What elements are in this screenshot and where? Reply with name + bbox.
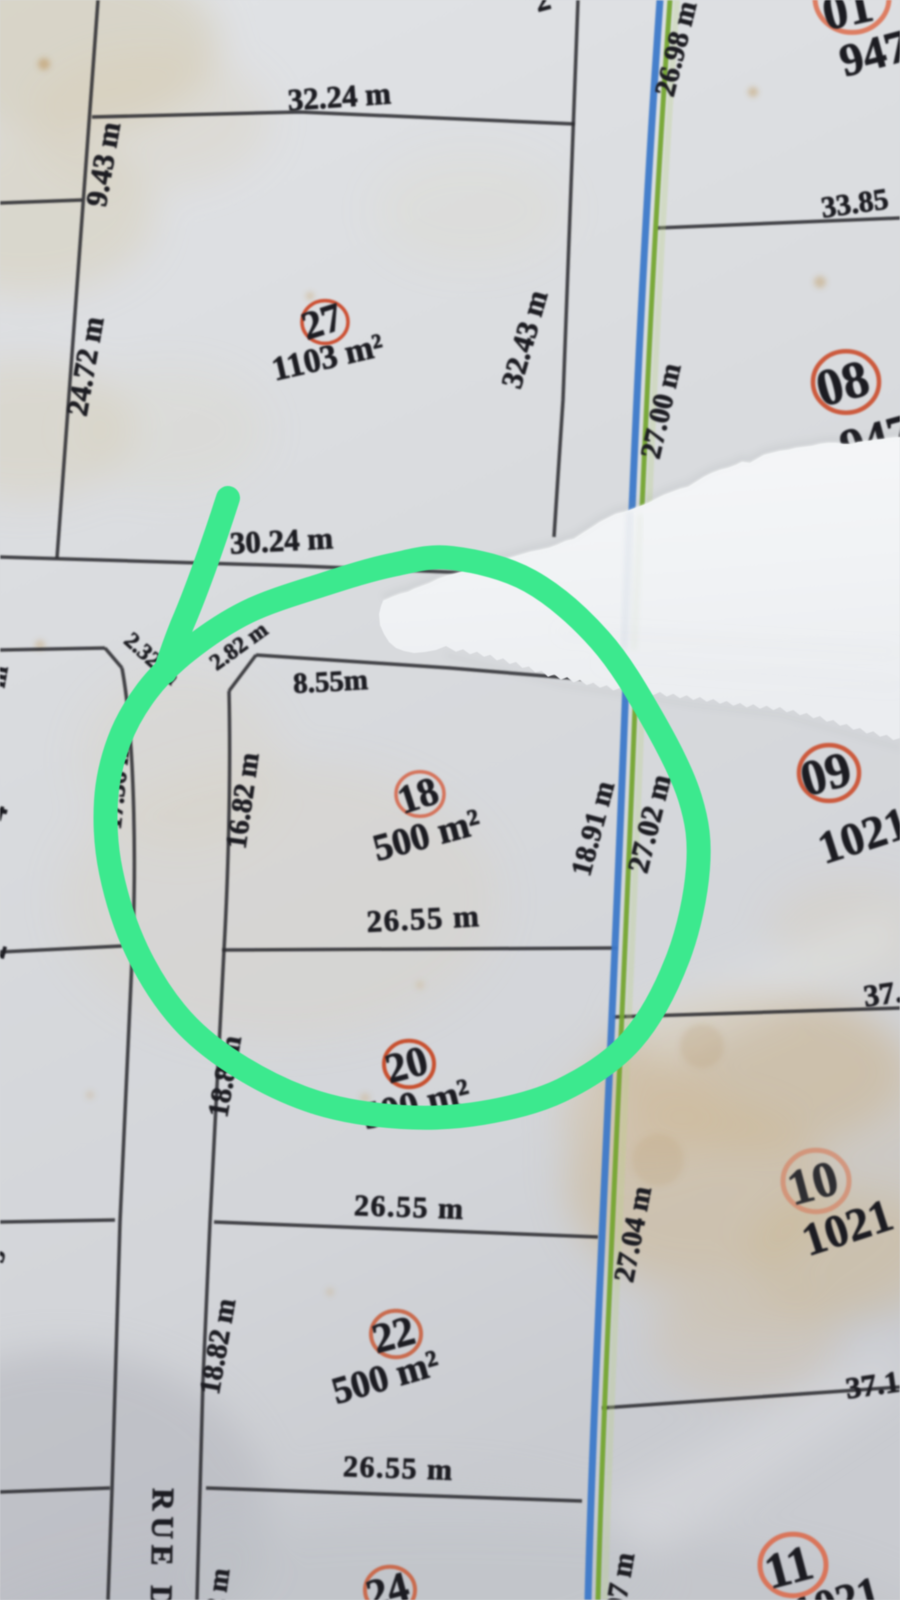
svg-text:30.24 m: 30.24 m [229,520,334,560]
svg-text:26.55 m: 26.55 m [366,898,482,939]
svg-text:26.55 m: 26.55 m [354,1189,466,1226]
svg-text:37.1: 37.1 [843,1363,900,1405]
svg-text:37.1: 37.1 [861,971,900,1013]
svg-text:26.55 m: 26.55 m [343,1450,455,1487]
svg-text:32.24 m: 32.24 m [287,75,393,117]
svg-text:8.55m: 8.55m [292,664,368,700]
svg-text:RUE DES: RUE DES [143,1488,181,1600]
